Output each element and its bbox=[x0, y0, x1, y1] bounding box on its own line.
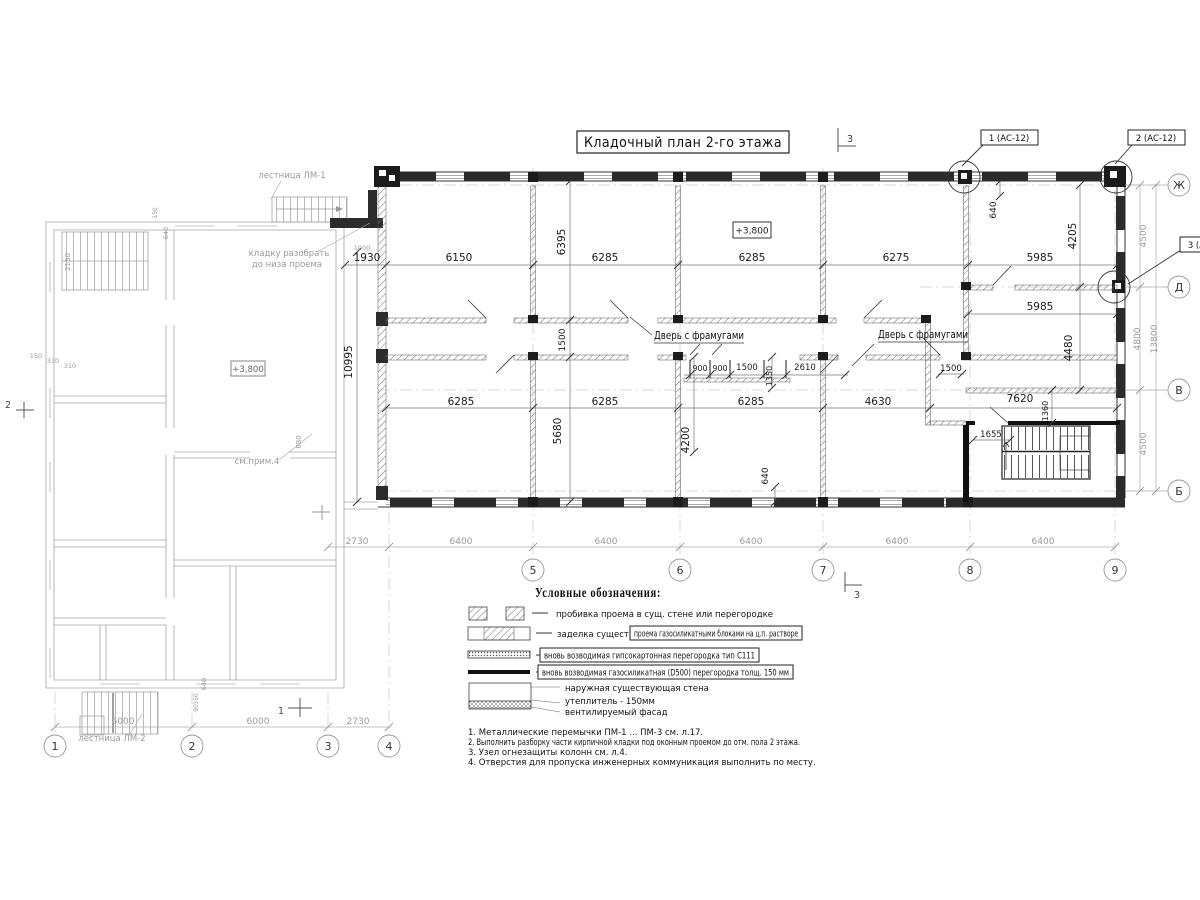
top-wall-piers bbox=[386, 172, 1102, 181]
axis-label-b: Б bbox=[1175, 485, 1183, 498]
level-mark-main: +3,800 bbox=[735, 227, 769, 237]
bottom-wall-piers bbox=[386, 498, 944, 507]
axis-label-3: 3 bbox=[325, 740, 332, 753]
dimension-text: 2730 bbox=[346, 537, 369, 547]
axis-label-2: 2 bbox=[189, 740, 196, 753]
dimension-text: 5985 bbox=[1027, 252, 1054, 264]
stair-lm1-label: лестница ЛМ-1 bbox=[258, 171, 325, 181]
dimension-text: 5680 bbox=[552, 418, 564, 445]
dimension-text: 6285 bbox=[738, 396, 765, 408]
dimension-text: 150 bbox=[193, 693, 200, 705]
axis-label-d: Д bbox=[1175, 281, 1184, 294]
dimension-text: 640 bbox=[200, 678, 208, 690]
stair-lm2-label: лестница ЛМ-2 bbox=[78, 734, 145, 744]
door-transom-label-1: Дверь с фрамугами bbox=[654, 329, 744, 342]
callout-1-label: 1 (АС-12) bbox=[989, 134, 1029, 144]
dimension-text: 680 bbox=[295, 435, 303, 448]
note-4: 4. Отверстия для пропуска инженерных ком… bbox=[468, 758, 816, 768]
see-note-label: см.прим.4 bbox=[235, 457, 280, 467]
dimension-text: 90 bbox=[193, 704, 200, 712]
dimension-text: 640 bbox=[761, 467, 771, 484]
drawing-sheet: 1 2 3 4 5 6 7 8 9 Ж Д В Б 1 (АС-12) 2 (А… bbox=[0, 0, 1200, 900]
dimension-text: 4800 bbox=[1133, 327, 1143, 350]
dimension-text: 6400 bbox=[740, 537, 763, 547]
dimension-text: 1000 bbox=[354, 244, 371, 252]
axis-label-v: В bbox=[1175, 384, 1183, 397]
dimension-text: 6285 bbox=[739, 252, 766, 264]
dimension-text: 1930 bbox=[354, 252, 381, 264]
dimension-text: 10995 bbox=[343, 345, 355, 378]
dimension-text: 7620 bbox=[1007, 393, 1034, 405]
axis-label-5: 5 bbox=[530, 564, 537, 577]
dimension-text: 6400 bbox=[595, 537, 618, 547]
dimension-text: 150 bbox=[30, 352, 42, 360]
legend-symbol-opening bbox=[469, 607, 487, 620]
dimension-text: 6400 bbox=[450, 537, 473, 547]
dimension-text: 6285 bbox=[448, 396, 475, 408]
dimension-text: 310 bbox=[64, 362, 76, 370]
legend-wall-text-3: вентилируемый фасад bbox=[565, 708, 668, 718]
dimension-text: 4500 bbox=[1139, 432, 1149, 455]
note-2: 2. Выполнить разборку части кирпичной кл… bbox=[468, 738, 800, 748]
dimension-text: 5985 bbox=[1027, 301, 1054, 313]
main-staircase bbox=[1002, 426, 1090, 479]
door-transom-label-2: Дверь с фрамугами bbox=[878, 328, 968, 341]
demolish-note-line1: кладку разобрать bbox=[249, 249, 330, 259]
dimension-text: 2150 bbox=[64, 253, 72, 271]
dimension-text: 6275 bbox=[883, 252, 910, 264]
floor-plan-drawing: 1 2 3 4 5 6 7 8 9 Ж Д В Б 1 (АС-12) 2 (А… bbox=[0, 0, 1200, 900]
legend: Условные обозначения: пробивка проема в … bbox=[468, 585, 802, 718]
dimension-text: 2610 bbox=[794, 363, 816, 373]
section-mark-3-top: 3 bbox=[847, 134, 853, 145]
dimension-text: 6395 bbox=[556, 229, 568, 256]
legend-header: Условные обозначения: bbox=[535, 585, 661, 600]
legend-item-3-text: вновь возводимая гипсокартонная перегоро… bbox=[544, 652, 755, 662]
dimension-text: 6400 bbox=[1032, 537, 1055, 547]
page-title: Кладочный план 2-го этажа bbox=[584, 135, 782, 151]
notes: 1. Металлические перемычки ПМ-1 ... ПМ-3… bbox=[468, 728, 816, 768]
callout-2-label: 2 (АС-12) bbox=[1136, 134, 1176, 144]
section-mark-2: 2 bbox=[5, 400, 11, 411]
legend-symbol-wall-section bbox=[469, 683, 560, 712]
legend-item-4-text: вновь возводимая газосиликатная (D500) п… bbox=[542, 669, 789, 679]
stair-lm2 bbox=[82, 692, 158, 734]
dimension-text: 6000 bbox=[247, 717, 270, 727]
dimension-text: 1500 bbox=[558, 328, 568, 351]
dimension-text: 6400 bbox=[886, 537, 909, 547]
legend-symbol-gypsum bbox=[468, 651, 530, 658]
title-block: Кладочный план 2-го этажа bbox=[577, 131, 789, 153]
level-mark-left: +3,800 bbox=[232, 365, 263, 375]
legend-wall-text-1: наружная существующая стена bbox=[565, 684, 709, 694]
dimension-text: 150 bbox=[152, 207, 159, 219]
dimension-text: 1500 bbox=[940, 364, 962, 374]
axis-label-zh: Ж bbox=[1173, 179, 1185, 192]
axis-label-6: 6 bbox=[677, 564, 684, 577]
dimension-text: 2730 bbox=[347, 717, 370, 727]
dimension-text: 6150 bbox=[446, 252, 473, 264]
dimension-text: 1360 bbox=[1041, 401, 1050, 421]
section-mark-1: 1 bbox=[278, 706, 284, 717]
dimension-text: 4200 bbox=[680, 427, 692, 454]
callout-3-label: 3 (АС-12) bbox=[1188, 241, 1200, 251]
dimension-text: 900 bbox=[692, 364, 707, 373]
axis-label-7: 7 bbox=[820, 564, 827, 577]
dimension-text: 1655 bbox=[980, 430, 1002, 440]
dimension-text: 1350 bbox=[765, 366, 774, 386]
main-plan bbox=[374, 166, 1126, 507]
dimension-text: 4480 bbox=[1063, 335, 1075, 362]
axis-label-1: 1 bbox=[52, 740, 59, 753]
dimension-text: 4500 bbox=[1139, 224, 1149, 247]
dimension-text: 640 bbox=[162, 227, 170, 239]
dimension-text: 6285 bbox=[592, 396, 619, 408]
axis-label-8: 8 bbox=[967, 564, 974, 577]
legend-item-1-text: пробивка проема в сущ. стене или перегор… bbox=[556, 610, 773, 620]
note-3: 3. Узел огнезащиты колонн см. л.4. bbox=[468, 748, 627, 758]
dimension-text: 6000 bbox=[112, 717, 135, 727]
dimension-text: 640 bbox=[989, 201, 999, 218]
dimension-text: 13800 bbox=[1150, 324, 1160, 353]
dimension-text: 330 bbox=[47, 357, 59, 365]
legend-wall-text-2: утеплитель - 150мм bbox=[565, 697, 655, 707]
axis-label-4: 4 bbox=[386, 740, 393, 753]
dimension-text: 900 bbox=[712, 364, 727, 373]
note-1: 1. Металлические перемычки ПМ-1 ... ПМ-3… bbox=[468, 728, 703, 738]
section-mark-3-bottom: 3 bbox=[854, 590, 860, 601]
axis-label-9: 9 bbox=[1112, 564, 1119, 577]
dimension-text: 1500 bbox=[736, 363, 758, 373]
callouts: 1 (АС-12) 2 (АС-12) 3 (АС-12) bbox=[948, 130, 1200, 303]
legend-item-2-prefix: заделка существ. bbox=[557, 630, 637, 640]
demolish-note-line2: до низа проема bbox=[252, 260, 322, 270]
dimension-text: 4630 bbox=[865, 396, 892, 408]
dimension-text: 6285 bbox=[592, 252, 619, 264]
dimension-text: 4205 bbox=[1067, 223, 1079, 250]
legend-item-2-text: проема газосиликатными блоками на ц.п. р… bbox=[634, 630, 798, 640]
left-building bbox=[46, 197, 378, 735]
